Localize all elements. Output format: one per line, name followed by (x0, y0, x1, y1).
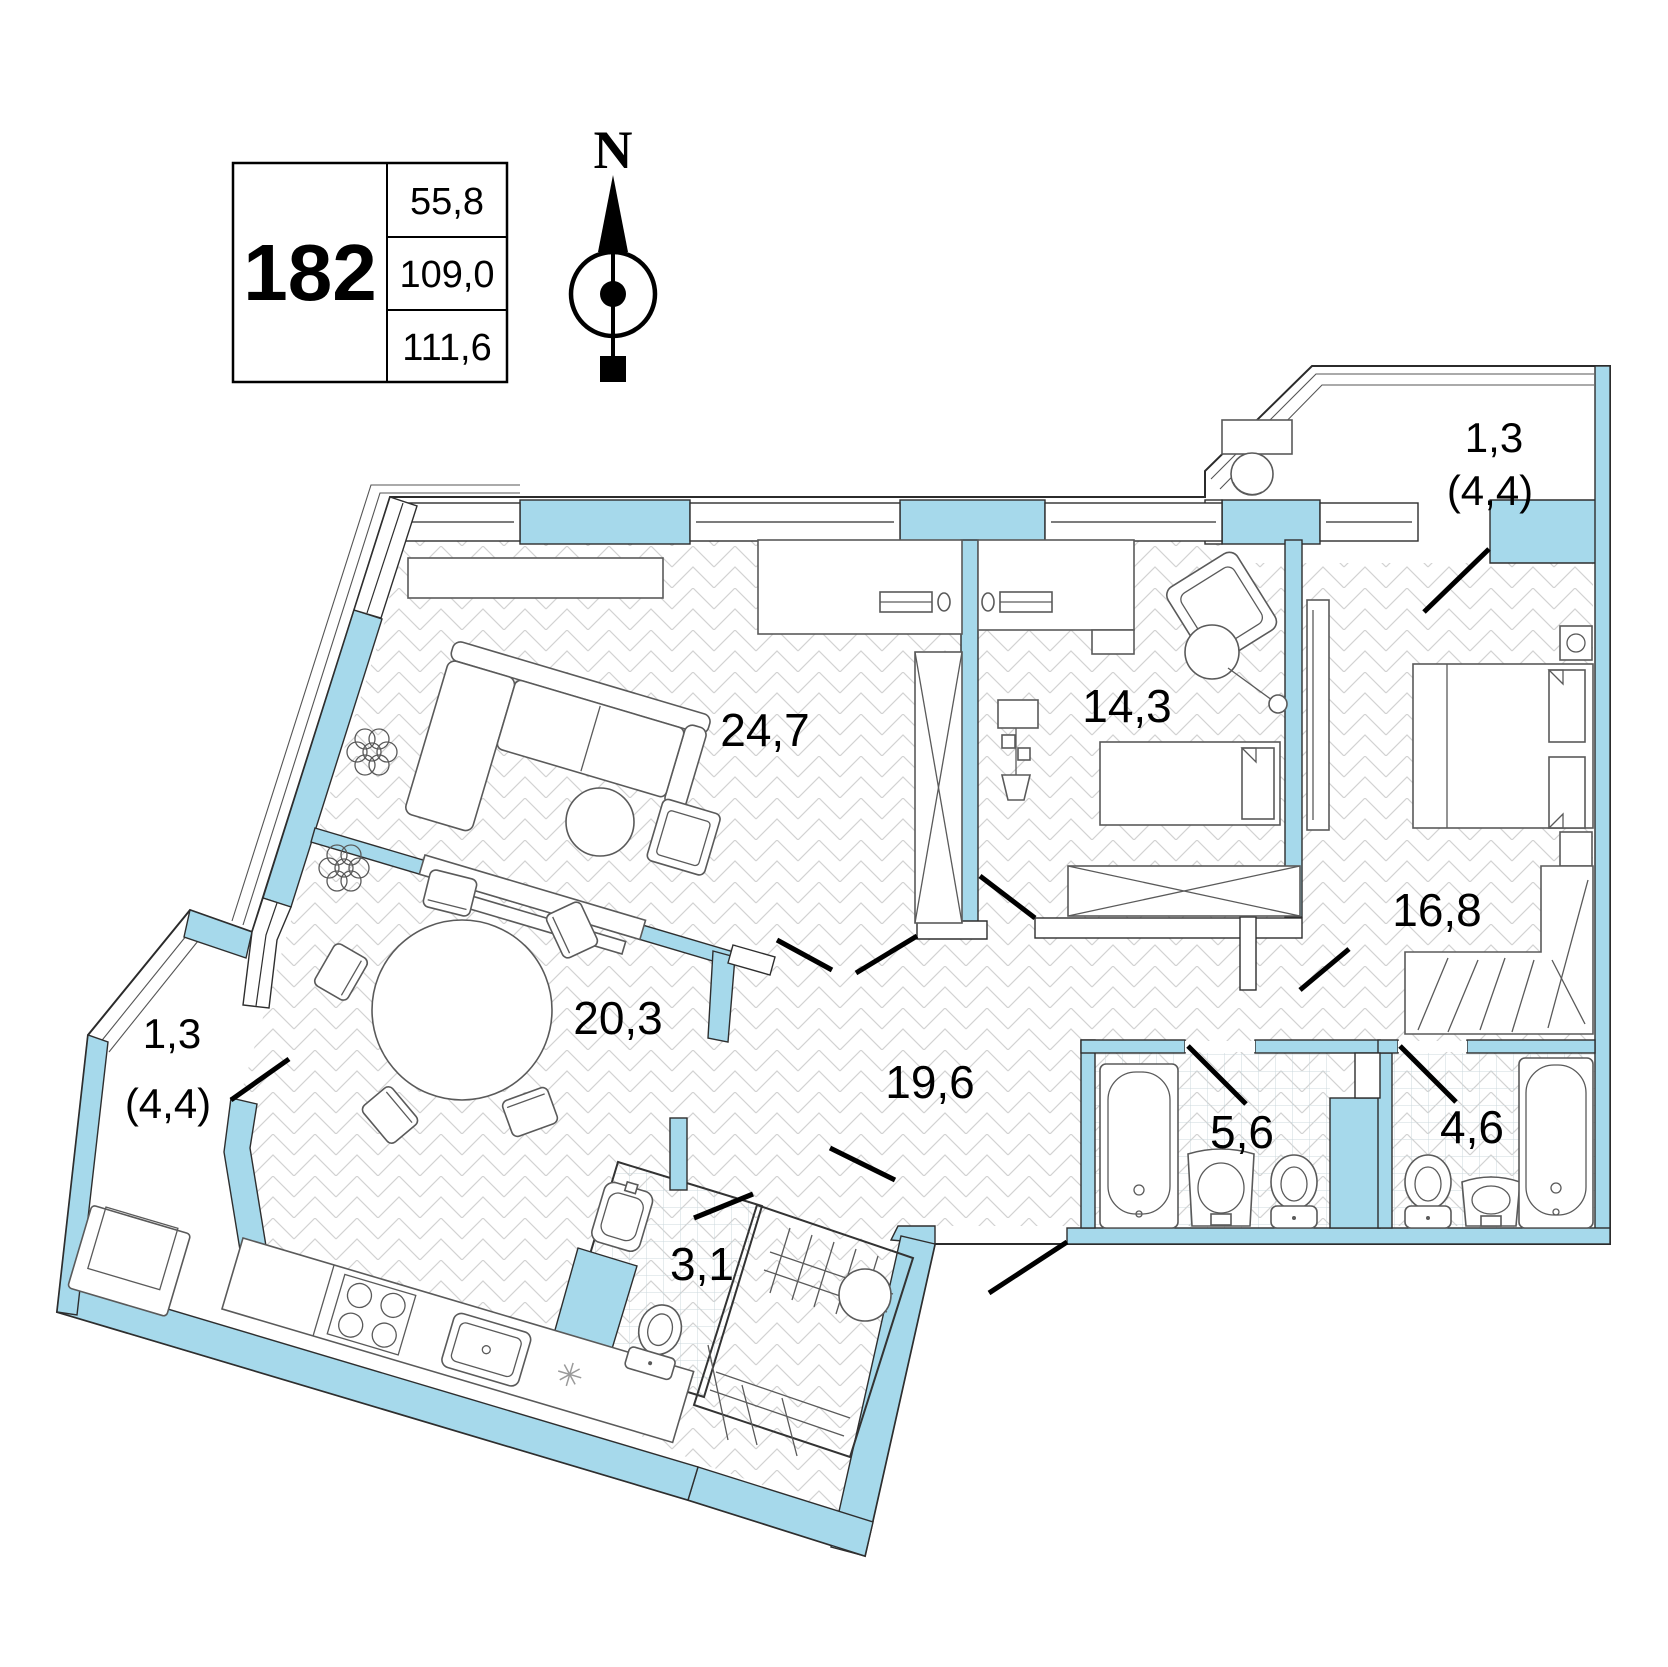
window-top-3 (1045, 503, 1222, 541)
sink-2 (1462, 1177, 1520, 1226)
label-bedroom1: 14,3 (1082, 680, 1172, 732)
label-bedroom2: 16,8 (1392, 884, 1482, 936)
bathtub-1 (1100, 1064, 1178, 1228)
label-balcony-left-total: (4,4) (125, 1080, 211, 1127)
nightstand-top (1560, 626, 1592, 660)
label-balcony-top: 1,3 (1465, 414, 1523, 461)
double-bed (1413, 664, 1593, 828)
legend-area-total: 111,6 (402, 327, 491, 369)
label-bathroom1: 5,6 (1210, 1106, 1274, 1158)
tall-cabinet (1307, 600, 1329, 830)
label-hallway: 19,6 (885, 1056, 975, 1108)
label-balcony-left: 1,3 (143, 1010, 201, 1057)
window-sill-cabinet (408, 558, 663, 598)
legend-area-living: 55,8 (410, 181, 484, 223)
mouse-icon (982, 593, 994, 611)
unit-number: 182 (243, 228, 376, 317)
label-dining: 20,3 (573, 992, 663, 1044)
north-label: N (594, 120, 633, 180)
label-living: 24,7 (720, 704, 810, 756)
wardrobe-living (915, 652, 962, 923)
window-top-4 (1320, 503, 1418, 541)
label-balcony-top-total: (4,4) (1447, 467, 1533, 514)
floor-plan-page: 182 55,8 109,0 111,6 N (0, 0, 1668, 1667)
toilet-1 (1271, 1155, 1317, 1228)
label-wc: 3,1 (670, 1238, 734, 1290)
bed-bedroom1 (1100, 742, 1280, 825)
desk-living (758, 540, 962, 634)
compass-rose: N (571, 120, 655, 382)
legend-box: 182 55,8 109,0 111,6 (233, 163, 507, 382)
toilet-2 (1405, 1155, 1451, 1228)
nightstand-bottom (1560, 832, 1592, 866)
dresser-bedroom1 (1068, 866, 1300, 916)
bathtub-2 (1519, 1058, 1593, 1228)
floor-plan-svg: 182 55,8 109,0 111,6 N (0, 0, 1668, 1667)
north-arrow-icon (598, 175, 628, 252)
legend-area-main: 109,0 (399, 254, 494, 296)
dining-table (372, 920, 552, 1100)
sink-1 (1188, 1149, 1254, 1226)
label-bathroom2: 4,6 (1440, 1101, 1504, 1153)
mouse-icon (938, 593, 950, 611)
washer (839, 1269, 891, 1321)
balcony-desk (1222, 420, 1292, 454)
coffee-table (566, 788, 634, 856)
door-entry (989, 1242, 1067, 1293)
window-top-2 (690, 503, 900, 541)
